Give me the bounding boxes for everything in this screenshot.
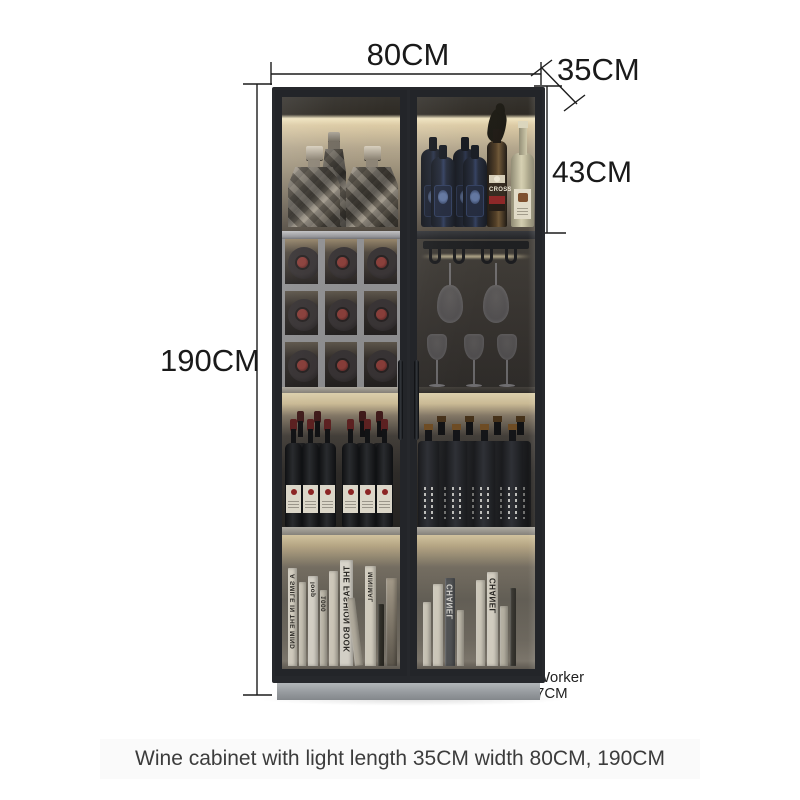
stemware-hook [505,249,517,264]
book-spine [423,602,431,666]
decanter-neck [308,160,320,167]
cabinet-base [277,683,540,700]
bottle-label [466,185,484,217]
book-spine: CHANEL [487,572,498,666]
wine-rack-cell [364,342,397,387]
bottle-label [434,185,452,217]
whiskey-bottle-shelf-right [417,393,535,527]
book-shelf-right: CHANEL CHANEL [417,535,535,669]
wine-rack-cell [285,342,318,387]
wine-glass [464,334,484,387]
wine-bottle-cap [297,309,308,320]
book-spine [510,588,516,666]
decanter-stopper [306,146,323,160]
book-title: CHANEL [488,578,497,614]
book-spine [299,582,306,666]
product-image: 80CM 35CM 43CM 190CM Worker 7CM [0,0,800,800]
white-wine-bottle [511,153,534,227]
square-bottle [418,423,439,527]
wine-bottle-cap [376,360,387,371]
wine-bottle [376,419,393,527]
book-spine: CHANEL [445,578,455,666]
left-door-glass: A SMILE IN THE MIND loop 1000 THE FASHIO… [282,97,400,669]
book-spine: loop [308,576,318,666]
wine-rack-cell [325,291,358,336]
wine-rack-cell [325,342,358,387]
hanging-wine-glass [437,263,463,323]
wine-rack-cell [285,291,318,336]
shelf-board [282,527,400,535]
book-spine [378,604,384,666]
decanter-body [288,167,340,227]
book-spine [386,578,397,666]
top-display-shelf-left [282,97,400,231]
wine-bottle [342,419,359,527]
wine-bottle-cap [376,309,387,320]
caption-band: Wine cabinet with light length 35CM widt… [100,739,700,779]
book-spine: MINIMAL [365,566,376,666]
wine-bottle-cap [297,360,308,371]
shelf-board [417,527,535,535]
decanter-stopper [328,132,340,142]
book-shelf-left: A SMILE IN THE MIND loop 1000 THE FASHIO… [282,535,400,669]
whiskey-bottle: CROSS [487,141,507,227]
decanter-neck [366,160,378,167]
wine-glass [497,334,517,387]
stemware-rack [423,241,529,249]
bottle-label-text: CROSS [489,187,505,193]
stemware-hook [453,249,465,264]
wine-cabinet: A SMILE IN THE MIND loop 1000 THE FASHIO… [272,87,545,683]
wine-bottle-cap [337,257,348,268]
book-spine [457,610,464,666]
wine-bottle [359,419,376,527]
gin-bottle [463,157,487,227]
wine-rack-cell [364,291,397,336]
book-spine [433,584,443,666]
decanter [346,146,398,227]
book-spine [500,606,508,666]
shelf-board [417,231,535,239]
bottle-label: CROSS [489,175,505,211]
wine-bottle [319,419,336,527]
square-bottle [502,423,523,527]
book-spine [476,580,485,666]
top-section-height-label: 43CM [552,156,632,190]
book-title: MINIMAL [367,572,374,603]
stemware-hook [429,249,441,264]
wine-bottle [285,419,302,527]
book-title: CHANEL [446,584,455,620]
book-spine: A SMILE IN THE MIND [288,568,297,666]
book-spine [329,571,338,666]
decanter-stopper [364,146,381,160]
wine-rack [282,239,400,387]
bottle-label [514,189,531,219]
width-dimension-label: 80CM [336,37,480,73]
stemware-hook [481,249,493,264]
decanter [288,146,340,227]
wine-rack-cell [285,239,318,284]
wine-bottle-cap [376,257,387,268]
wine-glass [427,334,447,387]
gin-bottle [431,157,455,227]
decanter-body [346,167,398,227]
left-glass-door: A SMILE IN THE MIND loop 1000 THE FASHIO… [275,90,407,676]
book-title: A SMILE IN THE MIND [289,574,296,649]
book-row: A SMILE IN THE MIND loop 1000 THE FASHIO… [286,535,396,666]
wine-rack-cell [325,239,358,284]
wine-rack-cell [364,239,397,284]
book-title: 1000 [320,596,327,612]
right-door-glass: CROSS [417,97,535,669]
square-bottle [446,423,467,527]
wine-bottle-cap [337,360,348,371]
wine-bottle-shelf-left [282,393,400,527]
book-row: CHANEL CHANEL [421,535,531,666]
depth-dimension-label: 35CM [557,52,640,88]
square-bottle [474,423,495,527]
shelf-board [282,231,400,239]
book-spine: 1000 [320,590,327,666]
right-glass-door: CROSS [410,90,542,676]
book-title: loop [310,582,317,597]
wine-bottle-cap [337,309,348,320]
wine-bottle [302,419,319,527]
caption-text: Wine cabinet with light length 35CM widt… [135,747,665,771]
height-dimension-label: 190CM [160,343,260,379]
wine-bottle-cap [297,257,308,268]
hanging-wine-glass [483,263,509,323]
door-handle-left[interactable] [398,360,403,440]
bottle-neck [519,127,527,155]
stemware-shelf [417,239,535,387]
top-display-shelf-right: CROSS [417,97,535,231]
